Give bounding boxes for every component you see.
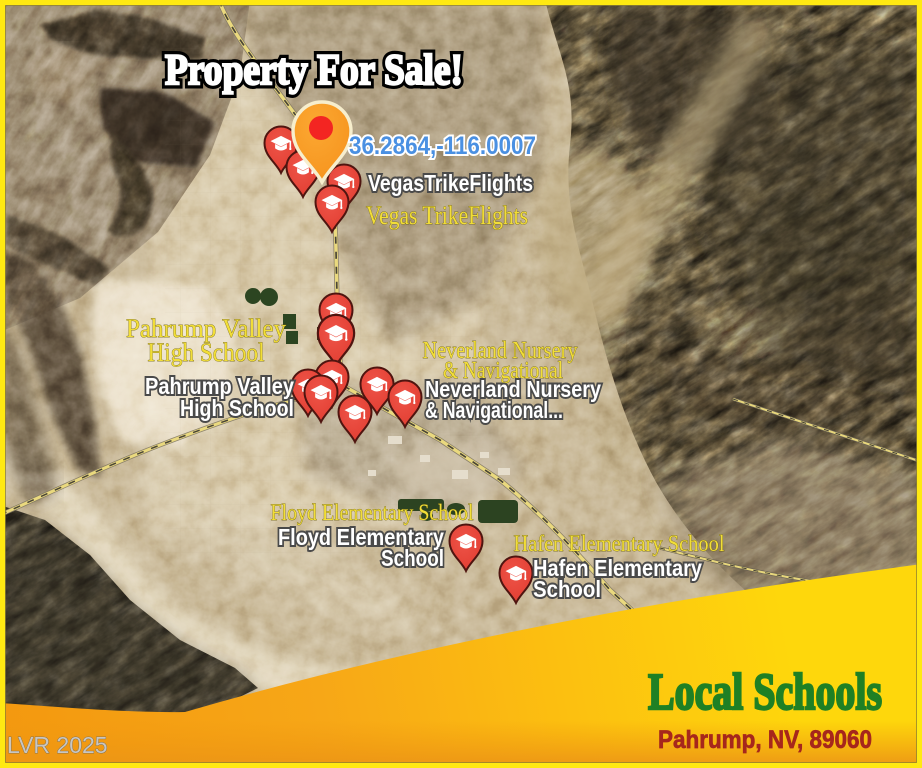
svg-text:School: School (381, 545, 444, 571)
svg-text:Pahrump, NV, 89060: Pahrump, NV, 89060 (658, 726, 872, 754)
svg-text:& Navigational...: & Navigational... (425, 397, 563, 423)
svg-text:Vegas TrikeFlights: Vegas TrikeFlights (366, 201, 528, 230)
svg-text:VegasTrikeFlights: VegasTrikeFlights (368, 170, 533, 196)
svg-text:Floyd Elementary School: Floyd Elementary School (271, 500, 474, 525)
svg-text:Hafen Elementary School: Hafen Elementary School (514, 531, 725, 556)
svg-text:School: School (533, 576, 601, 602)
svg-text:High School: High School (148, 338, 265, 367)
svg-text:LVR 2025: LVR 2025 (7, 732, 108, 758)
svg-text:High School: High School (180, 395, 294, 421)
svg-text:Property For Sale!: Property For Sale! (165, 47, 463, 94)
svg-text:Local Schools: Local Schools (648, 664, 882, 721)
svg-text:36.2864,-116.0007: 36.2864,-116.0007 (349, 132, 536, 160)
